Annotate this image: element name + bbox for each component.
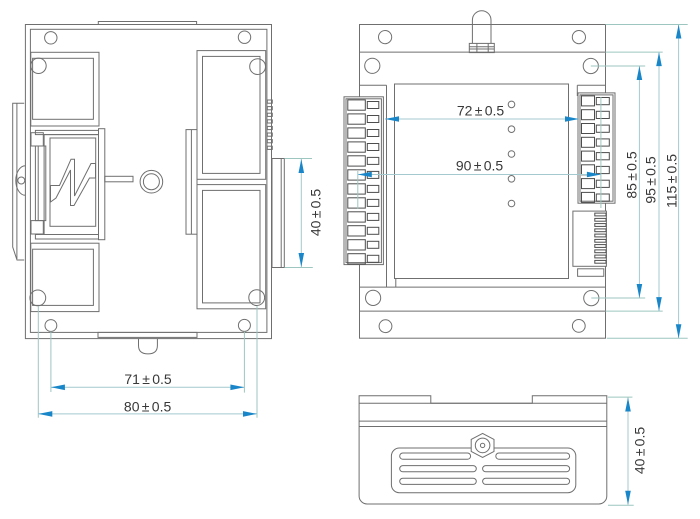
svg-text:90±0.5: 90±0.5 bbox=[456, 158, 504, 174]
svg-text:85±0.5: 85±0.5 bbox=[624, 151, 640, 199]
svg-text:95±0.5: 95±0.5 bbox=[643, 156, 659, 204]
svg-text:72±0.5: 72±0.5 bbox=[457, 102, 505, 118]
svg-text:40±0.5: 40±0.5 bbox=[308, 189, 324, 237]
svg-text:40±0.5: 40±0.5 bbox=[631, 427, 647, 475]
svg-text:71±0.5: 71±0.5 bbox=[124, 371, 172, 387]
svg-text:115±0.5: 115±0.5 bbox=[664, 154, 680, 208]
svg-text:80±0.5: 80±0.5 bbox=[124, 398, 172, 414]
